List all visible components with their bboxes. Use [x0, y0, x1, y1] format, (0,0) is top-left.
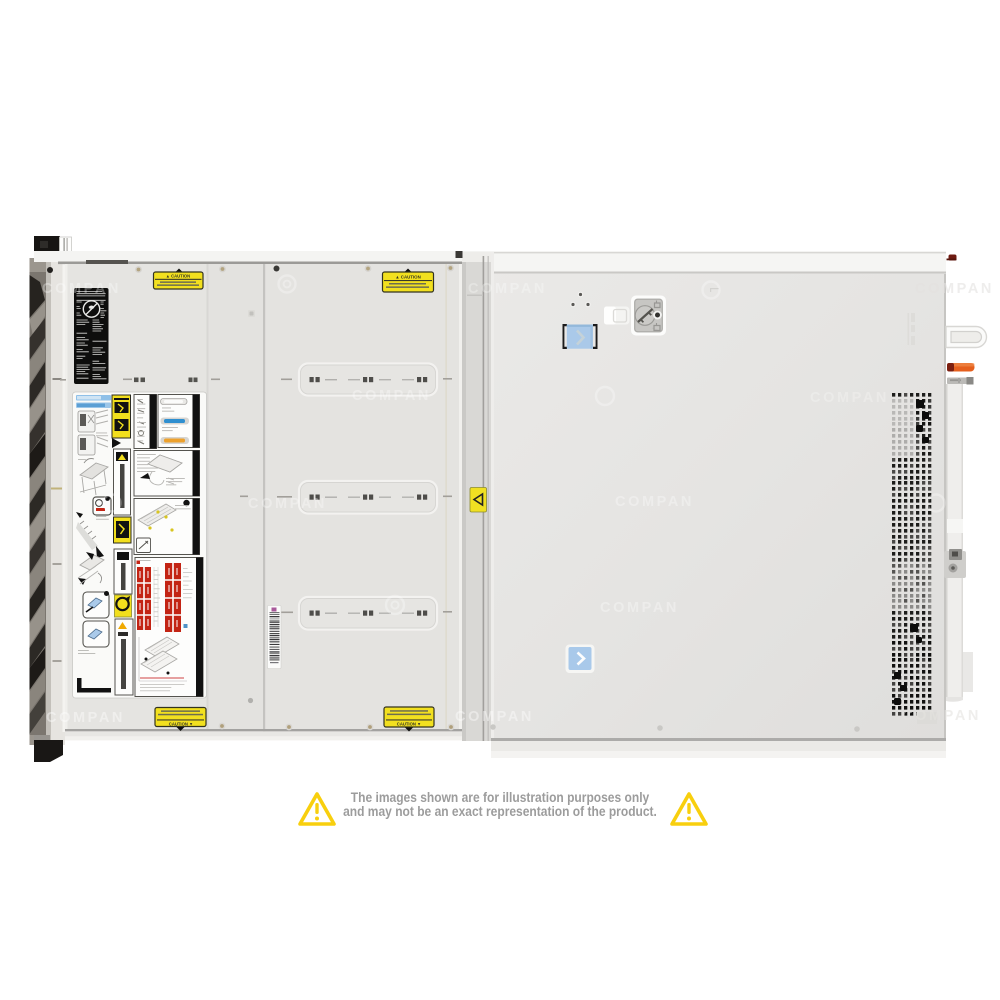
svg-text:COMPAN: COMPAN [600, 600, 679, 616]
svg-text:COMPAN: COMPAN [902, 708, 981, 724]
svg-text:▲ CAUTION: ▲ CAUTION [166, 274, 190, 279]
svg-text:COMPAN: COMPAN [468, 281, 547, 297]
svg-text:CAUTION ▼: CAUTION ▼ [397, 722, 421, 727]
svg-text:COMPAN: COMPAN [248, 496, 327, 512]
svg-text:▲ CAUTION: ▲ CAUTION [395, 274, 421, 279]
svg-text:COMPAN: COMPAN [915, 281, 994, 297]
svg-text:COMPAN: COMPAN [810, 390, 889, 406]
svg-text:COMPAN: COMPAN [455, 709, 534, 725]
svg-text:COMPAN: COMPAN [42, 281, 121, 297]
svg-text:COMPAN: COMPAN [615, 494, 694, 510]
svg-text:COMPAN: COMPAN [46, 710, 125, 726]
svg-text:CAUTION ▼: CAUTION ▼ [169, 721, 193, 726]
svg-text:COMPAN: COMPAN [352, 388, 431, 404]
